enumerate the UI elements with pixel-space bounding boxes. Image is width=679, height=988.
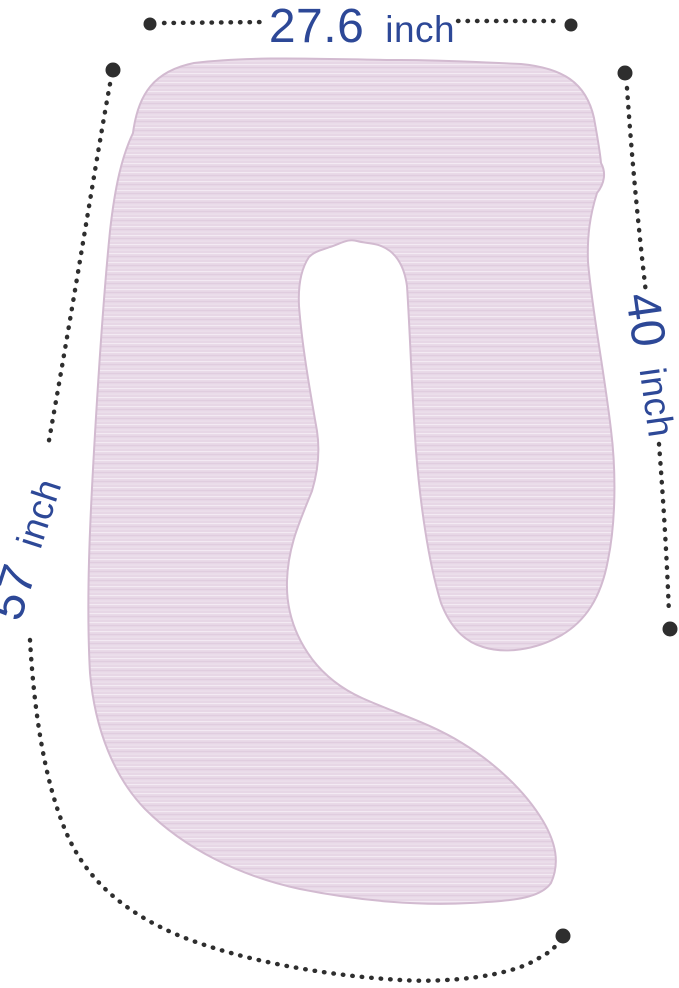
width-label: 27.6 inch xyxy=(269,0,455,53)
width-line-start-dot xyxy=(144,18,157,31)
length-unit: inch xyxy=(8,474,69,553)
height-measurement: 40 inch xyxy=(616,66,679,637)
height-line-start-dot xyxy=(618,66,633,81)
length-line-start-dot xyxy=(106,63,121,78)
length-value: 57 xyxy=(0,558,47,626)
height-label: 40 inch xyxy=(616,289,679,440)
width-measurement: 27.6 inch xyxy=(144,0,578,53)
diagram-canvas: 27.6 inch 40 inch 57 inch xyxy=(0,0,679,988)
width-line-left-segment xyxy=(164,22,266,23)
pillow-shape xyxy=(88,58,614,903)
width-value: 27.6 xyxy=(269,0,364,53)
height-line-upper-segment xyxy=(627,88,646,293)
height-line-end-dot xyxy=(663,622,678,637)
length-label: 57 inch xyxy=(0,472,75,627)
length-line-end-dot xyxy=(556,929,571,944)
height-value: 40 xyxy=(616,289,676,350)
height-unit: inch xyxy=(632,365,679,440)
width-line-end-dot xyxy=(565,19,578,32)
height-line-lower-segment xyxy=(659,444,669,614)
pillow-dimension-diagram: 27.6 inch 40 inch 57 inch xyxy=(0,0,679,988)
width-unit: inch xyxy=(385,9,455,50)
